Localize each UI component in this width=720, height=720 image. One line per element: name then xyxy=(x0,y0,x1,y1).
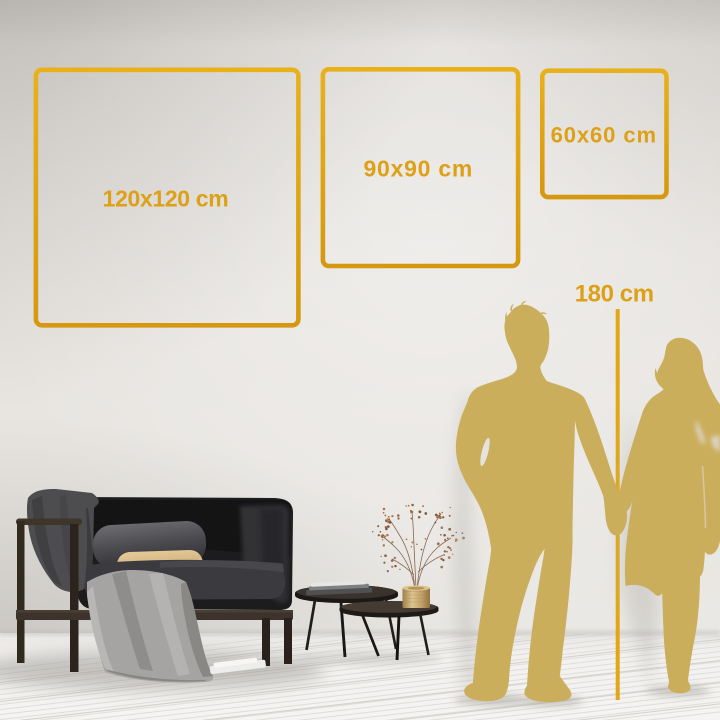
svg-text:90x90 cm: 90x90 cm xyxy=(364,155,474,181)
svg-text:60x60 cm: 60x60 cm xyxy=(551,123,657,148)
svg-text:120x120 cm: 120x120 cm xyxy=(103,186,229,212)
svg-text:180 cm: 180 cm xyxy=(575,280,654,307)
